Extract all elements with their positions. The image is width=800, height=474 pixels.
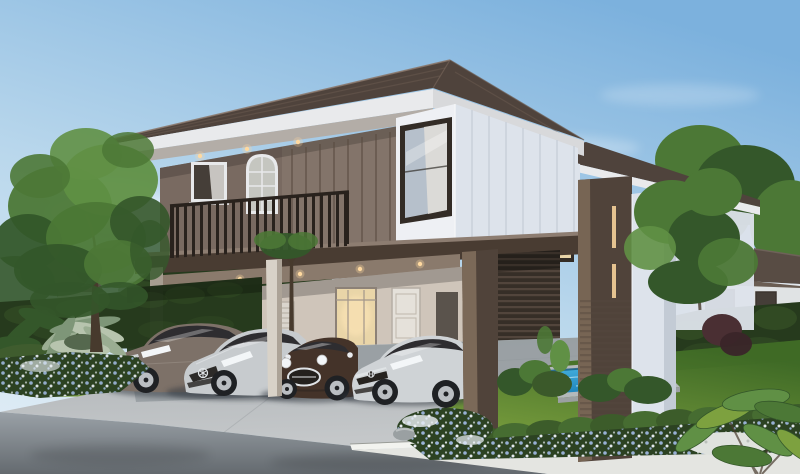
upper-window (189, 162, 229, 205)
shaded-window (436, 292, 458, 340)
mirror-icon (347, 352, 353, 358)
rendering-canvas: Clear pale-blue morning sky with soft cl… (0, 0, 800, 474)
glass-entry-door (336, 288, 376, 346)
carport-column: Slim light concrete carport column (266, 259, 282, 397)
corner-window: Corner window with white curtain on the … (400, 117, 452, 224)
side-door (392, 288, 420, 344)
architectural-rendering: Clear pale-blue morning sky with soft cl… (0, 0, 800, 474)
